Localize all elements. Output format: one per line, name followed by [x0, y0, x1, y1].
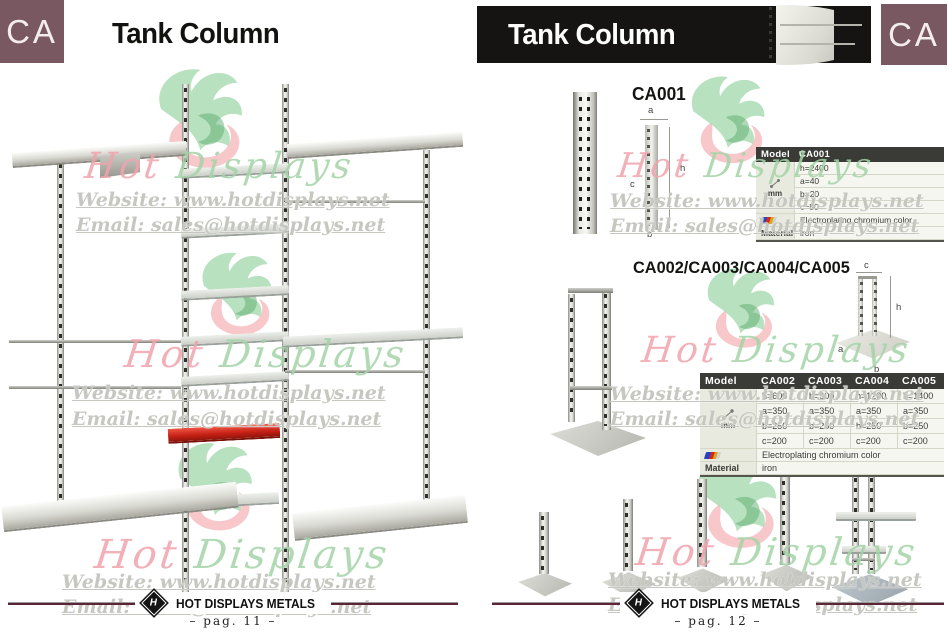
product-column [539, 512, 549, 574]
spec-cell: b=250 [803, 419, 850, 434]
spec-finish-value: Electroplating chromium color [794, 214, 944, 227]
right-page-footer: H HOT DISPLAYS METALS – pag. 12 – [492, 592, 944, 628]
spec-cell: c=50 [794, 201, 944, 214]
ca001-spec-table: Model CA001 mm h=2400 a=40 b=20 c=50 Ele… [756, 147, 944, 242]
spec-model-label: Model [700, 373, 756, 389]
diagram-leg [872, 278, 877, 336]
spec-cell: b=20 [794, 188, 944, 201]
display-shelf [181, 223, 289, 239]
spec-cell: h=1400 [897, 389, 944, 404]
display-hang-rail [285, 370, 425, 373]
spec-cell: c=200 [850, 434, 897, 449]
display-base-shelf [292, 495, 468, 541]
diagram-dim-line [669, 127, 670, 228]
spec-unit-text: mm [768, 189, 782, 198]
ca-series-product-photo [548, 282, 648, 458]
spec-model-value: CA005 [897, 373, 944, 389]
diagram-label-h: h [896, 302, 901, 313]
footer-brand-text: HOT DISPLAYS METALS [661, 596, 800, 611]
footer-brand: H HOT DISPLAYS METALS [620, 592, 816, 614]
product-leg [568, 294, 575, 422]
page-number: – pag. 12 – [492, 614, 944, 628]
product-shelf [836, 512, 916, 521]
hot-displays-diamond-logo: H [626, 590, 651, 615]
spec-model-value: CA003 [803, 373, 850, 389]
left-page-footer: H HOT DISPLAYS METALS – pag. 11 – [8, 592, 458, 628]
diagram-label-a: a [838, 344, 843, 355]
diagram-label-a: a [648, 105, 653, 116]
section-code-text: CA [6, 13, 58, 51]
spec-cell: a=350 [756, 404, 803, 419]
display-hang-rail [9, 340, 181, 343]
spec-cell: h=900 [803, 389, 850, 404]
spec-finish-icon-cell [756, 214, 794, 227]
display-shelf [181, 371, 289, 387]
left-page-title: Tank Column [112, 18, 279, 51]
diagram-top-bar [858, 276, 877, 279]
header-product-photo [701, 5, 872, 65]
spec-model-label: Model [756, 147, 794, 162]
spec-model-value: CA004 [850, 373, 897, 389]
bottom-photo-ca003 [600, 497, 658, 601]
spec-cell: c=200 [756, 434, 803, 449]
bottom-photo-application [826, 462, 918, 610]
color-chip-icon [760, 217, 777, 224]
spec-cell: a=40 [794, 175, 944, 188]
spec-material-label: Material [700, 462, 756, 475]
bottom-photo-ca005 [758, 465, 814, 595]
photo-rail [780, 43, 855, 45]
diagram-dim-line [856, 272, 882, 273]
spec-unit-cell: mm [756, 162, 794, 214]
spec-cell: h=1200 [850, 389, 897, 404]
dimension-icon [769, 178, 781, 189]
ca001-product-photo [573, 92, 597, 234]
ca001-diagram: a h c b [628, 105, 700, 240]
display-base-shelf [1, 482, 238, 533]
display-column [57, 150, 64, 523]
spec-unit-cell: mm [700, 389, 756, 449]
product-leg [602, 290, 611, 430]
product-cross-bar [570, 386, 612, 390]
spec-model-value: CA001 [794, 147, 944, 162]
bottom-photo-ca002 [515, 508, 575, 600]
section-code-text: CA [888, 16, 940, 54]
spec-cell: b=250 [850, 419, 897, 434]
photo-rail [780, 24, 862, 26]
diagram-label-c: c [864, 260, 869, 271]
ca001-heading: CA001 [632, 84, 686, 105]
dimension-icon [721, 408, 735, 421]
right-section-code-badge: CA [881, 4, 947, 65]
spec-finish-value: Electroplating chromium color [756, 449, 944, 462]
product-column [780, 467, 790, 565]
spec-cell: b=250 [897, 419, 944, 434]
spec-material-value: iron [794, 227, 944, 240]
product-column [697, 479, 707, 567]
footer-brand: H HOT DISPLAYS METALS [135, 592, 331, 614]
spec-cell: h=600 [756, 389, 803, 404]
diagram-label-c: c [630, 179, 635, 190]
display-hang-rail [9, 386, 181, 389]
diagram-label-b: b [647, 229, 652, 240]
spec-cell: a=350 [803, 404, 850, 419]
display-hang-rail [285, 200, 425, 203]
spec-cell: h=2400 [794, 162, 944, 175]
product-base [548, 408, 648, 458]
photo-panel [776, 5, 834, 65]
product-shelf [842, 546, 886, 554]
bottom-photo-ca004 [676, 477, 730, 597]
product-top-bar [568, 288, 613, 293]
catalog-spread: CA Tank Column Hot Displays Website: www… [0, 0, 949, 637]
display-shelf [181, 285, 289, 301]
diagram-column [645, 125, 658, 230]
spec-cell: c=200 [897, 434, 944, 449]
page-number: – pag. 11 – [8, 614, 458, 628]
product-column [623, 499, 633, 571]
spec-material-label: Material [756, 227, 794, 240]
spec-cell: c=200 [803, 434, 850, 449]
diagram-dim-line [890, 276, 891, 338]
spec-unit-text: mm [721, 421, 735, 430]
ca-series-heading: CA002/CA003/CA004/CA005 [633, 258, 850, 278]
right-page-title: Tank Column [508, 19, 675, 52]
spec-model-value: CA002 [756, 373, 803, 389]
spec-cell: a=350 [850, 404, 897, 419]
left-section-code-badge: CA [0, 0, 64, 63]
diagram-dim-line [640, 119, 668, 120]
display-shelf [181, 331, 289, 347]
display-shelf [181, 163, 289, 179]
product-cross-bar [852, 558, 875, 561]
spec-material-value: iron [756, 462, 944, 475]
spec-cell: a=350 [897, 404, 944, 419]
ca-series-spec-table: Model CA002 CA003 CA004 CA005 mm h=600 h… [700, 373, 944, 477]
display-canopy-shelf [12, 141, 188, 168]
hot-displays-diamond-logo: H [141, 590, 166, 615]
wall-display-photo [5, 66, 465, 598]
display-shelf [283, 327, 463, 347]
footer-brand-text: HOT DISPLAYS METALS [176, 596, 315, 611]
color-chip-icon [704, 452, 721, 459]
diagram-leg [858, 278, 863, 336]
spec-cell: b=250 [756, 419, 803, 434]
spec-finish-icon-cell [700, 449, 756, 462]
photo-slot-strip [769, 7, 772, 62]
display-canopy-shelf [287, 132, 464, 159]
diagram-label-h: h [680, 163, 685, 174]
